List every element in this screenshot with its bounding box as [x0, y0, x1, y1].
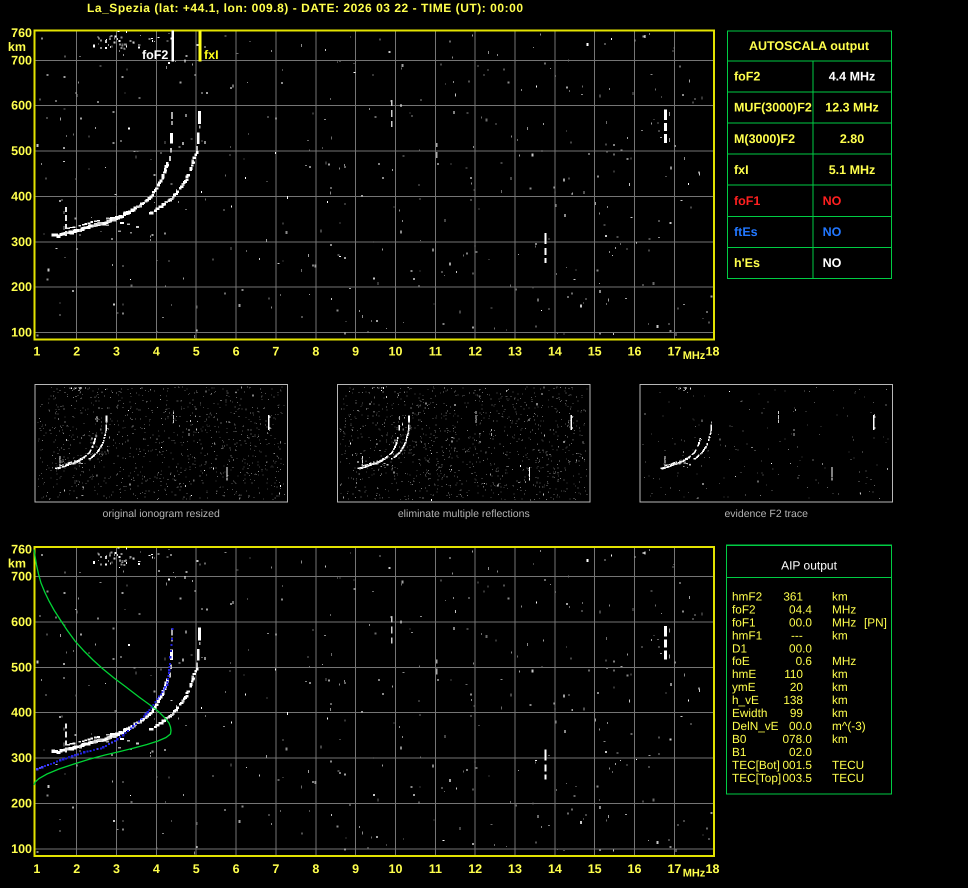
svg-text:700: 700 [11, 570, 32, 584]
svg-text:MHz: MHz [683, 868, 706, 880]
svg-text:16: 16 [628, 862, 642, 876]
svg-text:MHz: MHz [832, 654, 856, 668]
svg-text:13: 13 [508, 862, 522, 876]
svg-text:m^(-3): m^(-3) [832, 719, 866, 733]
svg-text:foF2: foF2 [734, 70, 760, 84]
svg-text:NO: NO [823, 256, 842, 270]
svg-text:2: 2 [73, 345, 80, 359]
svg-text:foF2: foF2 [142, 48, 168, 62]
svg-text:4: 4 [153, 862, 160, 876]
svg-text:2: 2 [73, 862, 80, 876]
svg-text:12: 12 [468, 345, 482, 359]
svg-text:6: 6 [233, 345, 240, 359]
svg-text:MHz: MHz [832, 603, 856, 617]
svg-text:8: 8 [312, 862, 319, 876]
svg-text:foE: foE [732, 654, 750, 668]
svg-text:10: 10 [389, 862, 403, 876]
svg-text:9: 9 [352, 345, 359, 359]
svg-text:h_vE: h_vE [732, 693, 759, 707]
svg-text:km: km [832, 667, 848, 681]
svg-text:04.4: 04.4 [789, 603, 812, 617]
svg-text:km: km [832, 590, 848, 604]
svg-text:1: 1 [33, 862, 40, 876]
svg-text:11: 11 [429, 862, 442, 876]
svg-text:14: 14 [548, 862, 562, 876]
svg-text:foF1: foF1 [732, 615, 756, 629]
svg-text:12.3 MHz: 12.3 MHz [825, 101, 879, 115]
svg-text:La_Spezia (lat: +44.1, lon: 00: La_Spezia (lat: +44.1, lon: 009.8) - DAT… [87, 1, 523, 15]
svg-text:15: 15 [588, 345, 602, 359]
svg-text:600: 600 [11, 99, 32, 113]
svg-text:foF2: foF2 [732, 603, 756, 617]
svg-text:00.0: 00.0 [789, 641, 812, 655]
svg-text:hmF2: hmF2 [732, 590, 762, 604]
svg-text:hmF1: hmF1 [732, 628, 762, 642]
svg-text:2.80: 2.80 [840, 132, 864, 146]
svg-text:DelN_vE: DelN_vE [732, 719, 779, 733]
svg-text:16: 16 [628, 345, 642, 359]
svg-text:8: 8 [312, 345, 319, 359]
svg-text:10: 10 [389, 345, 403, 359]
svg-text:15: 15 [588, 862, 602, 876]
svg-text:760: 760 [11, 542, 32, 556]
svg-text:11: 11 [429, 345, 442, 359]
svg-text:7: 7 [272, 345, 279, 359]
svg-text:fxI: fxI [204, 48, 219, 62]
svg-text:ftEs: ftEs [734, 225, 758, 239]
svg-text:0.6: 0.6 [796, 654, 813, 668]
svg-text:1: 1 [33, 345, 40, 359]
svg-text:400: 400 [11, 189, 32, 203]
svg-text:100: 100 [11, 326, 32, 340]
svg-text:fxI: fxI [734, 163, 749, 177]
svg-text:760: 760 [11, 26, 32, 40]
svg-text:200: 200 [11, 280, 32, 294]
svg-text:5: 5 [193, 345, 200, 359]
svg-text:17: 17 [667, 862, 681, 876]
svg-text:13: 13 [508, 345, 522, 359]
svg-text:ymE: ymE [732, 680, 756, 694]
svg-text:7: 7 [272, 862, 279, 876]
svg-text:foF1: foF1 [734, 194, 760, 208]
svg-text:TEC[Bot]: TEC[Bot] [732, 758, 780, 772]
svg-text:original ionogram resized: original ionogram resized [103, 508, 220, 520]
svg-text:D1: D1 [732, 641, 747, 655]
svg-text:eliminate multiple reflections: eliminate multiple reflections [398, 508, 530, 520]
svg-text:361: 361 [783, 590, 803, 604]
svg-text:Ewidth: Ewidth [732, 706, 767, 720]
svg-text:MUF(3000)F2: MUF(3000)F2 [734, 101, 812, 115]
svg-text:6: 6 [233, 862, 240, 876]
svg-text:4.4 MHz: 4.4 MHz [829, 70, 876, 84]
svg-text:[PN]: [PN] [864, 615, 887, 629]
svg-text:B0: B0 [732, 732, 747, 746]
svg-text:18: 18 [706, 345, 720, 359]
svg-text:evidence F2 trace: evidence F2 trace [724, 508, 808, 520]
svg-text:02.0: 02.0 [789, 745, 812, 759]
svg-text:3: 3 [113, 345, 120, 359]
svg-text:AUTOSCALA output: AUTOSCALA output [749, 39, 870, 53]
svg-text:300: 300 [11, 751, 32, 765]
svg-text:14: 14 [548, 345, 562, 359]
svg-text:B1: B1 [732, 745, 746, 759]
svg-text:5.1 MHz: 5.1 MHz [829, 163, 876, 177]
svg-text:TEC[Top]: TEC[Top] [732, 771, 781, 785]
svg-text:3: 3 [113, 862, 120, 876]
svg-text:hmE: hmE [732, 667, 756, 681]
svg-text:078.0: 078.0 [782, 732, 812, 746]
svg-text:M(3000)F2: M(3000)F2 [734, 132, 795, 146]
svg-text:km: km [832, 680, 848, 694]
svg-text:9: 9 [352, 862, 359, 876]
svg-text:700: 700 [11, 53, 32, 67]
svg-text:km: km [832, 706, 848, 720]
svg-text:12: 12 [468, 862, 482, 876]
svg-text:18: 18 [706, 862, 720, 876]
svg-text:500: 500 [11, 660, 32, 674]
svg-text:138: 138 [783, 693, 803, 707]
svg-text:00.0: 00.0 [789, 615, 812, 629]
svg-text:400: 400 [11, 706, 32, 720]
svg-text:5: 5 [193, 862, 200, 876]
svg-text:TECU: TECU [832, 771, 864, 785]
svg-text:300: 300 [11, 235, 32, 249]
svg-text:AIP output: AIP output [781, 559, 837, 573]
svg-text:003.5: 003.5 [782, 771, 812, 785]
svg-text:km: km [8, 556, 26, 570]
svg-text:km: km [832, 693, 848, 707]
svg-text:MHz: MHz [683, 350, 706, 362]
svg-text:km: km [8, 40, 26, 54]
svg-text:001.5: 001.5 [782, 758, 812, 772]
svg-text:600: 600 [11, 615, 32, 629]
svg-text:h'Es: h'Es [734, 256, 760, 270]
svg-text:00.0: 00.0 [789, 719, 812, 733]
svg-text:NO: NO [823, 225, 842, 239]
svg-text:4: 4 [153, 345, 160, 359]
svg-text:km: km [832, 732, 848, 746]
svg-text:---: --- [791, 628, 803, 642]
svg-text:20: 20 [790, 680, 804, 694]
svg-text:NO: NO [823, 194, 842, 208]
svg-text:99: 99 [790, 706, 803, 720]
svg-text:MHz: MHz [832, 615, 856, 629]
svg-text:17: 17 [667, 345, 681, 359]
svg-text:100: 100 [11, 842, 32, 856]
svg-text:500: 500 [11, 144, 32, 158]
svg-text:200: 200 [11, 796, 32, 810]
svg-text:km: km [832, 628, 848, 642]
svg-text:110: 110 [784, 667, 803, 681]
svg-text:TECU: TECU [832, 758, 864, 772]
